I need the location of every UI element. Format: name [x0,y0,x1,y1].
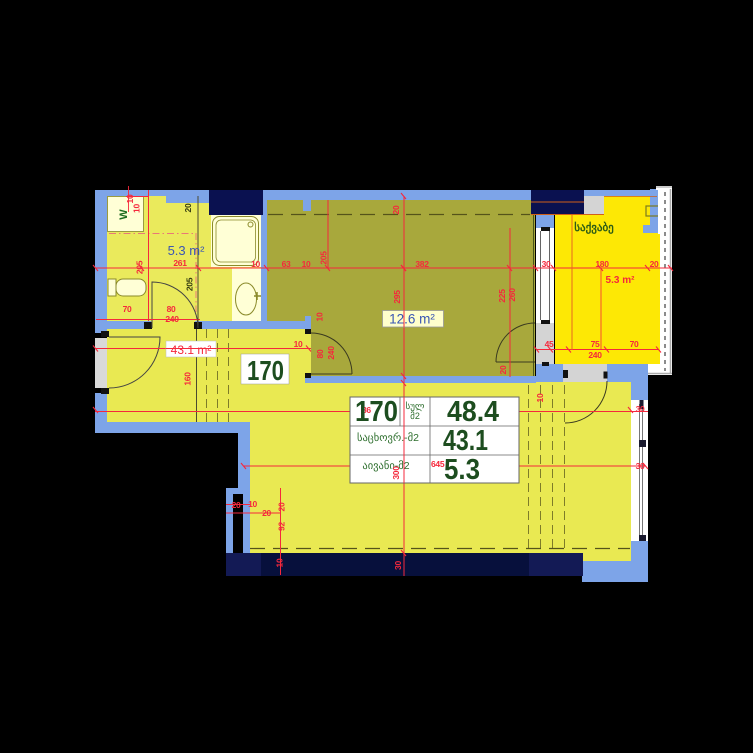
svg-text:საქვაბე: საქვაბე [574,221,614,234]
svg-text:მ2: მ2 [410,411,420,421]
svg-text:205: 205 [135,260,145,274]
svg-text:170: 170 [247,355,284,386]
svg-text:20: 20 [232,500,241,510]
svg-text:260: 260 [507,288,517,302]
svg-text:80: 80 [167,304,176,314]
svg-text:20: 20 [262,508,271,518]
svg-text:70: 70 [630,339,639,349]
svg-text:48.4: 48.4 [447,396,499,428]
svg-text:70: 70 [123,304,132,314]
svg-text:30: 30 [636,461,645,471]
svg-text:12.6 m²: 12.6 m² [389,312,435,327]
svg-text:261: 261 [173,258,187,268]
svg-text:170: 170 [355,396,398,428]
svg-text:20: 20 [391,205,401,214]
svg-text:10: 10 [302,259,311,269]
svg-text:10: 10 [315,312,325,321]
svg-text:20: 20 [183,203,193,212]
svg-text:205: 205 [185,277,195,291]
svg-text:180: 180 [595,259,609,269]
svg-text:382: 382 [415,259,429,269]
svg-text:10: 10 [251,259,260,269]
svg-text:43.1 m²: 43.1 m² [171,343,212,357]
svg-text:43.1: 43.1 [443,425,488,457]
svg-text:20: 20 [498,365,508,374]
svg-text:30: 30 [542,259,551,269]
svg-text:საცხოვრ.-მ2: საცხოვრ.-მ2 [357,431,419,444]
svg-text:10: 10 [275,558,285,567]
svg-text:240: 240 [326,346,336,360]
svg-text:30: 30 [636,404,645,414]
svg-text:645: 645 [431,459,445,469]
svg-text:10: 10 [248,499,257,509]
svg-text:75: 75 [591,339,600,349]
svg-text:205: 205 [319,251,329,265]
svg-text:10: 10 [132,204,142,213]
svg-text:80: 80 [315,349,325,358]
svg-text:63: 63 [282,259,291,269]
svg-text:240: 240 [165,314,179,324]
svg-text:225: 225 [497,289,507,303]
svg-text:5.3 m²: 5.3 m² [606,275,636,286]
svg-text:295: 295 [392,290,402,304]
svg-text:5.3: 5.3 [444,454,480,486]
svg-text:5.3 m²: 5.3 m² [168,243,206,258]
svg-text:240: 240 [588,350,602,360]
svg-text:10: 10 [294,339,303,349]
svg-text:30: 30 [393,561,403,570]
svg-text:აივანი-მ2: აივანი-მ2 [362,459,409,472]
svg-text:300: 300 [391,466,401,480]
svg-text:160: 160 [183,372,193,386]
svg-text:20: 20 [277,502,287,511]
svg-text:10: 10 [535,393,545,402]
svg-text:20: 20 [650,259,659,269]
svg-text:92: 92 [277,522,287,531]
svg-text:10: 10 [125,194,135,203]
